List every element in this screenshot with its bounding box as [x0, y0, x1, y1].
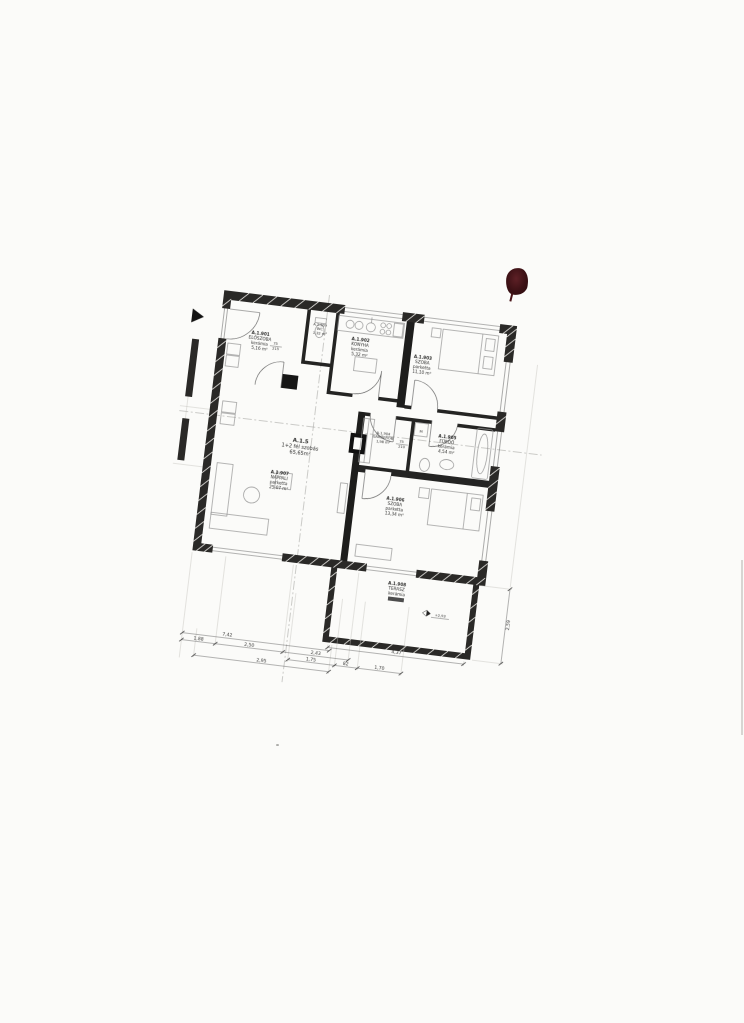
room-label-nappali: A.1.907 NAPPALI parketta 25,07 m² — [269, 469, 291, 491]
room-label-furdo: A.1.905 FÜRDŐ kerámia 4,54 m² — [436, 433, 458, 455]
toilet — [419, 458, 431, 472]
desk — [355, 544, 392, 560]
entrance-arrow — [191, 308, 205, 323]
scan-edge-artifact — [741, 560, 743, 735]
right-dimension: 2,59 — [505, 620, 512, 631]
washer-label: M — [419, 430, 423, 434]
label-smudge — [388, 596, 404, 602]
room-label-garderob: A.1.904 GARDERÓB 1,98 m² — [372, 430, 395, 445]
svg-text:82: 82 — [342, 661, 349, 668]
svg-text:1,70: 1,70 — [374, 665, 385, 672]
scan-speck — [276, 744, 279, 746]
hall-furniture — [225, 343, 241, 367]
bedroom2-furniture — [355, 481, 483, 571]
room-label-wc: A.1.909 WC 1,32 m² — [312, 322, 328, 336]
svg-text:7,42: 7,42 — [222, 632, 233, 639]
coffee-table — [243, 486, 261, 504]
door-size-annotations: 75 215 75 210 — [259, 341, 418, 449]
floorplan-svg: A.1.901 ELŐSZOBA kerámia 5,16 m² A.1.909… — [147, 279, 558, 721]
svg-text:1,88: 1,88 — [193, 636, 204, 643]
floor-plan: A.1.901 ELŐSZOBA kerámia 5,16 m² A.1.909… — [147, 279, 558, 721]
apartment-label: A.1.5 1+2 fél szobás 65,65m² — [280, 436, 321, 459]
svg-text:4,37: 4,37 — [391, 649, 402, 656]
room-label-eloszoba: A.1.901 ELŐSZOBA kerámia 5,16 m² — [247, 330, 273, 353]
sofa — [211, 463, 233, 517]
tv-cabinet — [337, 483, 348, 514]
room-label-terasz: A.1.908 TERASZ kerámia — [387, 580, 408, 597]
svg-text:1,75: 1,75 — [305, 656, 316, 663]
bedroom1-furniture — [427, 328, 498, 376]
svg-text:2,50: 2,50 — [244, 642, 255, 649]
room-label-konyha: A.1.902 KONYHA kerámia 5,32 m² — [349, 336, 371, 358]
sink — [439, 459, 454, 471]
svg-text:2,43: 2,43 — [310, 650, 321, 657]
room-label-szoba2: A.1.906 SZOBA parketta 13,34 m² — [384, 496, 406, 518]
dimension-lines: 7,42 1,88 2,50 2,43 1,75 82 1,70 2,95 4,… — [177, 326, 543, 697]
svg-text:2,95: 2,95 — [256, 657, 267, 664]
boiler-symbol — [366, 322, 376, 332]
room-label-szoba1: A.1.903 SZOBA parketta 11,10 m² — [412, 354, 434, 376]
scanned-page: A.1.901 ELŐSZOBA kerámia 5,16 m² A.1.909… — [0, 0, 744, 1023]
level-marker: +2,93 — [422, 610, 450, 620]
ink-stamp — [505, 267, 530, 296]
